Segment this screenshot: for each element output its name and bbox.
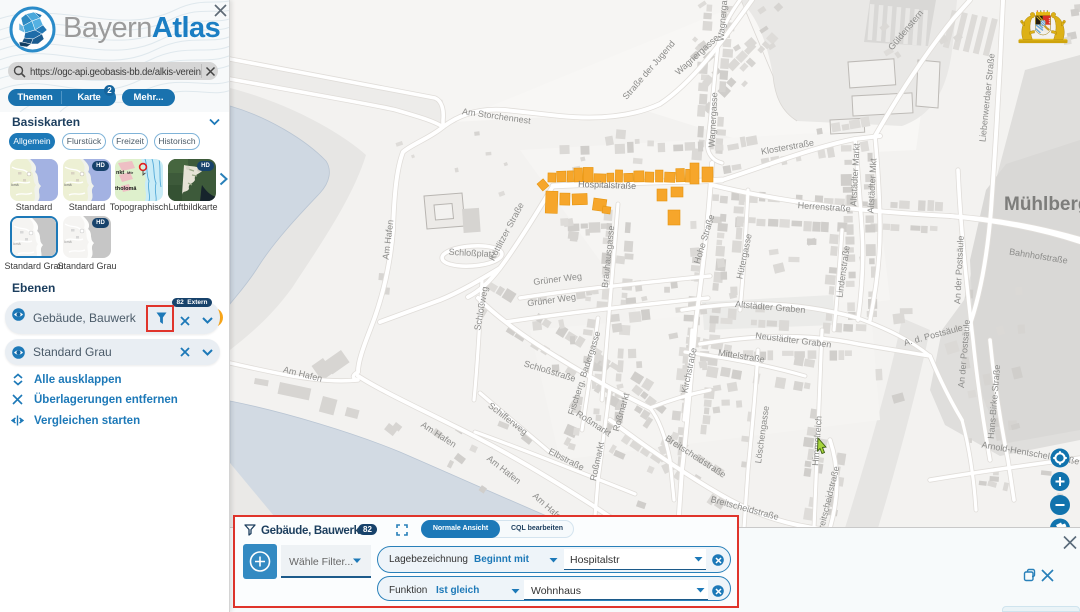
svg-text:Mtr: Mtr (127, 170, 134, 175)
svg-text:lomä: lomä (64, 240, 72, 244)
svg-text:lomä: lomä (11, 183, 19, 187)
svg-text:nkt: nkt (116, 170, 124, 176)
svg-text:Hospitalstraße: Hospitalstraße (578, 179, 636, 191)
svg-text:lomä: lomä (64, 183, 72, 187)
svg-text:Mühlberg: Mühlberg (1004, 194, 1080, 215)
svg-text:lomä: lomä (13, 242, 21, 246)
svg-text:tholomä: tholomä (115, 186, 137, 192)
